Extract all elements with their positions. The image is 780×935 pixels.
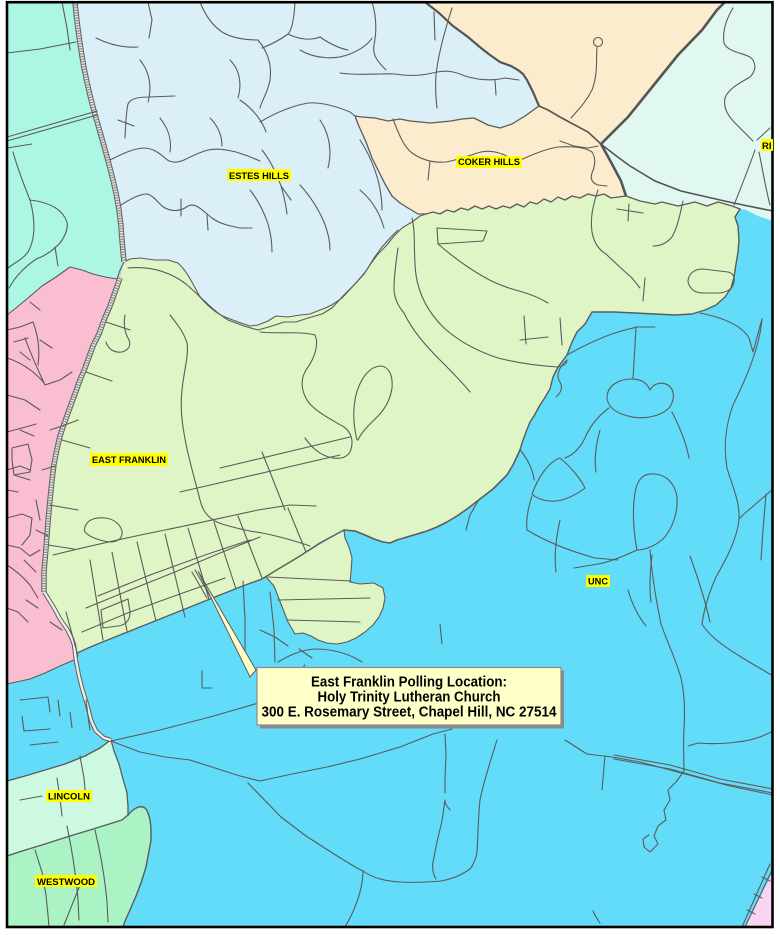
svg-text:ESTES HILLS: ESTES HILLS bbox=[229, 171, 289, 182]
svg-text:RI: RI bbox=[762, 141, 772, 152]
svg-text:EAST FRANKLIN: EAST FRANKLIN bbox=[92, 455, 166, 466]
svg-text:300 E. Rosemary Street, Chapel: 300 E. Rosemary Street, Chapel Hill, NC … bbox=[262, 705, 557, 721]
svg-text:East Franklin Polling Location: East Franklin Polling Location: bbox=[311, 675, 507, 691]
svg-text:LINCOLN: LINCOLN bbox=[48, 792, 90, 803]
svg-text:WESTWOOD: WESTWOOD bbox=[37, 877, 95, 888]
svg-text:UNC: UNC bbox=[588, 577, 608, 588]
svg-text:COKER HILLS: COKER HILLS bbox=[458, 157, 520, 168]
svg-text:Holy Trinity Lutheran Church: Holy Trinity Lutheran Church bbox=[318, 690, 501, 706]
